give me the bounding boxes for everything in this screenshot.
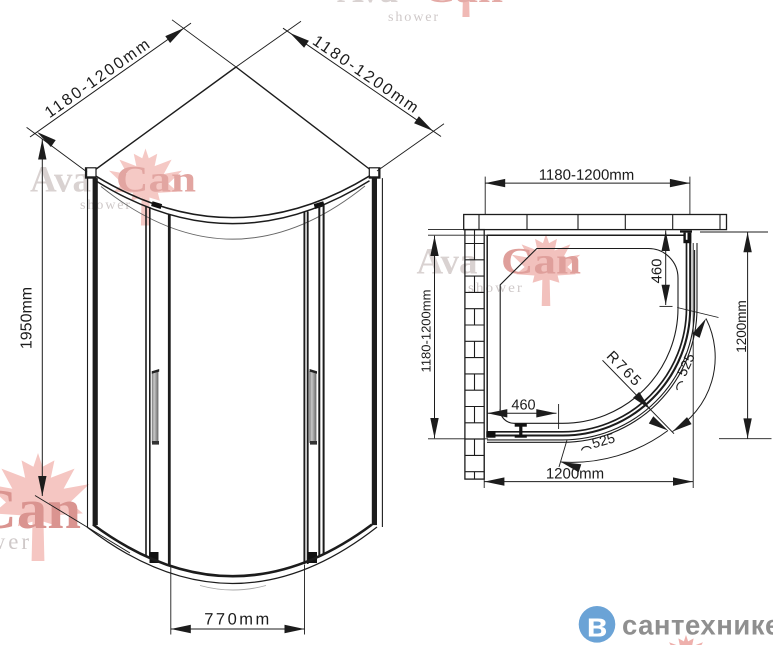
svg-text:Can: Can [501,242,581,283]
svg-text:shower: shower [0,529,32,554]
svg-text:Can: Can [116,160,196,201]
svg-text:Ava: Ava [30,160,91,201]
svg-text:1180-1200mm: 1180-1200mm [309,33,423,118]
svg-text:460: 460 [649,258,666,283]
svg-text:1180-1200mm: 1180-1200mm [539,167,635,184]
svg-text:1950mm: 1950mm [19,287,36,349]
svg-text:1180-1200mm: 1180-1200mm [419,290,434,373]
svg-text:1200mm: 1200mm [734,300,749,353]
svg-text:shower: shower [388,10,440,25]
svg-text:в: в [587,607,608,645]
svg-text:460: 460 [511,397,535,413]
svg-text:R765: R765 [603,348,646,391]
svg-text:770mm: 770mm [204,610,272,628]
svg-text:shower: shower [468,281,524,296]
svg-text:1180-1200mm: 1180-1200mm [42,35,155,122]
svg-text:сантехнике: сантехнике [622,610,773,641]
